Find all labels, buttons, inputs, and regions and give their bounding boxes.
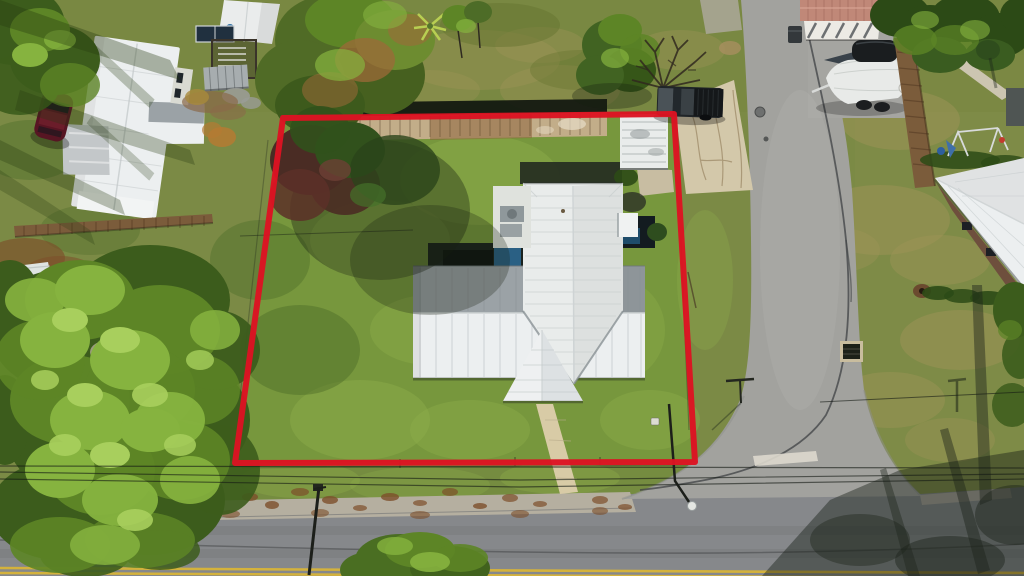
edge-structure-roof [1006, 88, 1024, 126]
gray-metal-shed [203, 64, 249, 91]
pickup-truck [653, 86, 726, 126]
street-light-lamp [688, 502, 697, 511]
roadside-marker [651, 418, 659, 425]
storage-shed [620, 114, 668, 170]
pink-outbuilding [800, 0, 882, 40]
aerial-photo-canvas [0, 0, 1024, 576]
trash-bin [788, 26, 802, 43]
aerial-photo [0, 0, 1024, 576]
roof-chimney-block [618, 213, 638, 237]
yard-bush [647, 223, 667, 241]
manhole-cover [755, 107, 765, 117]
storm-culvert [840, 341, 863, 362]
